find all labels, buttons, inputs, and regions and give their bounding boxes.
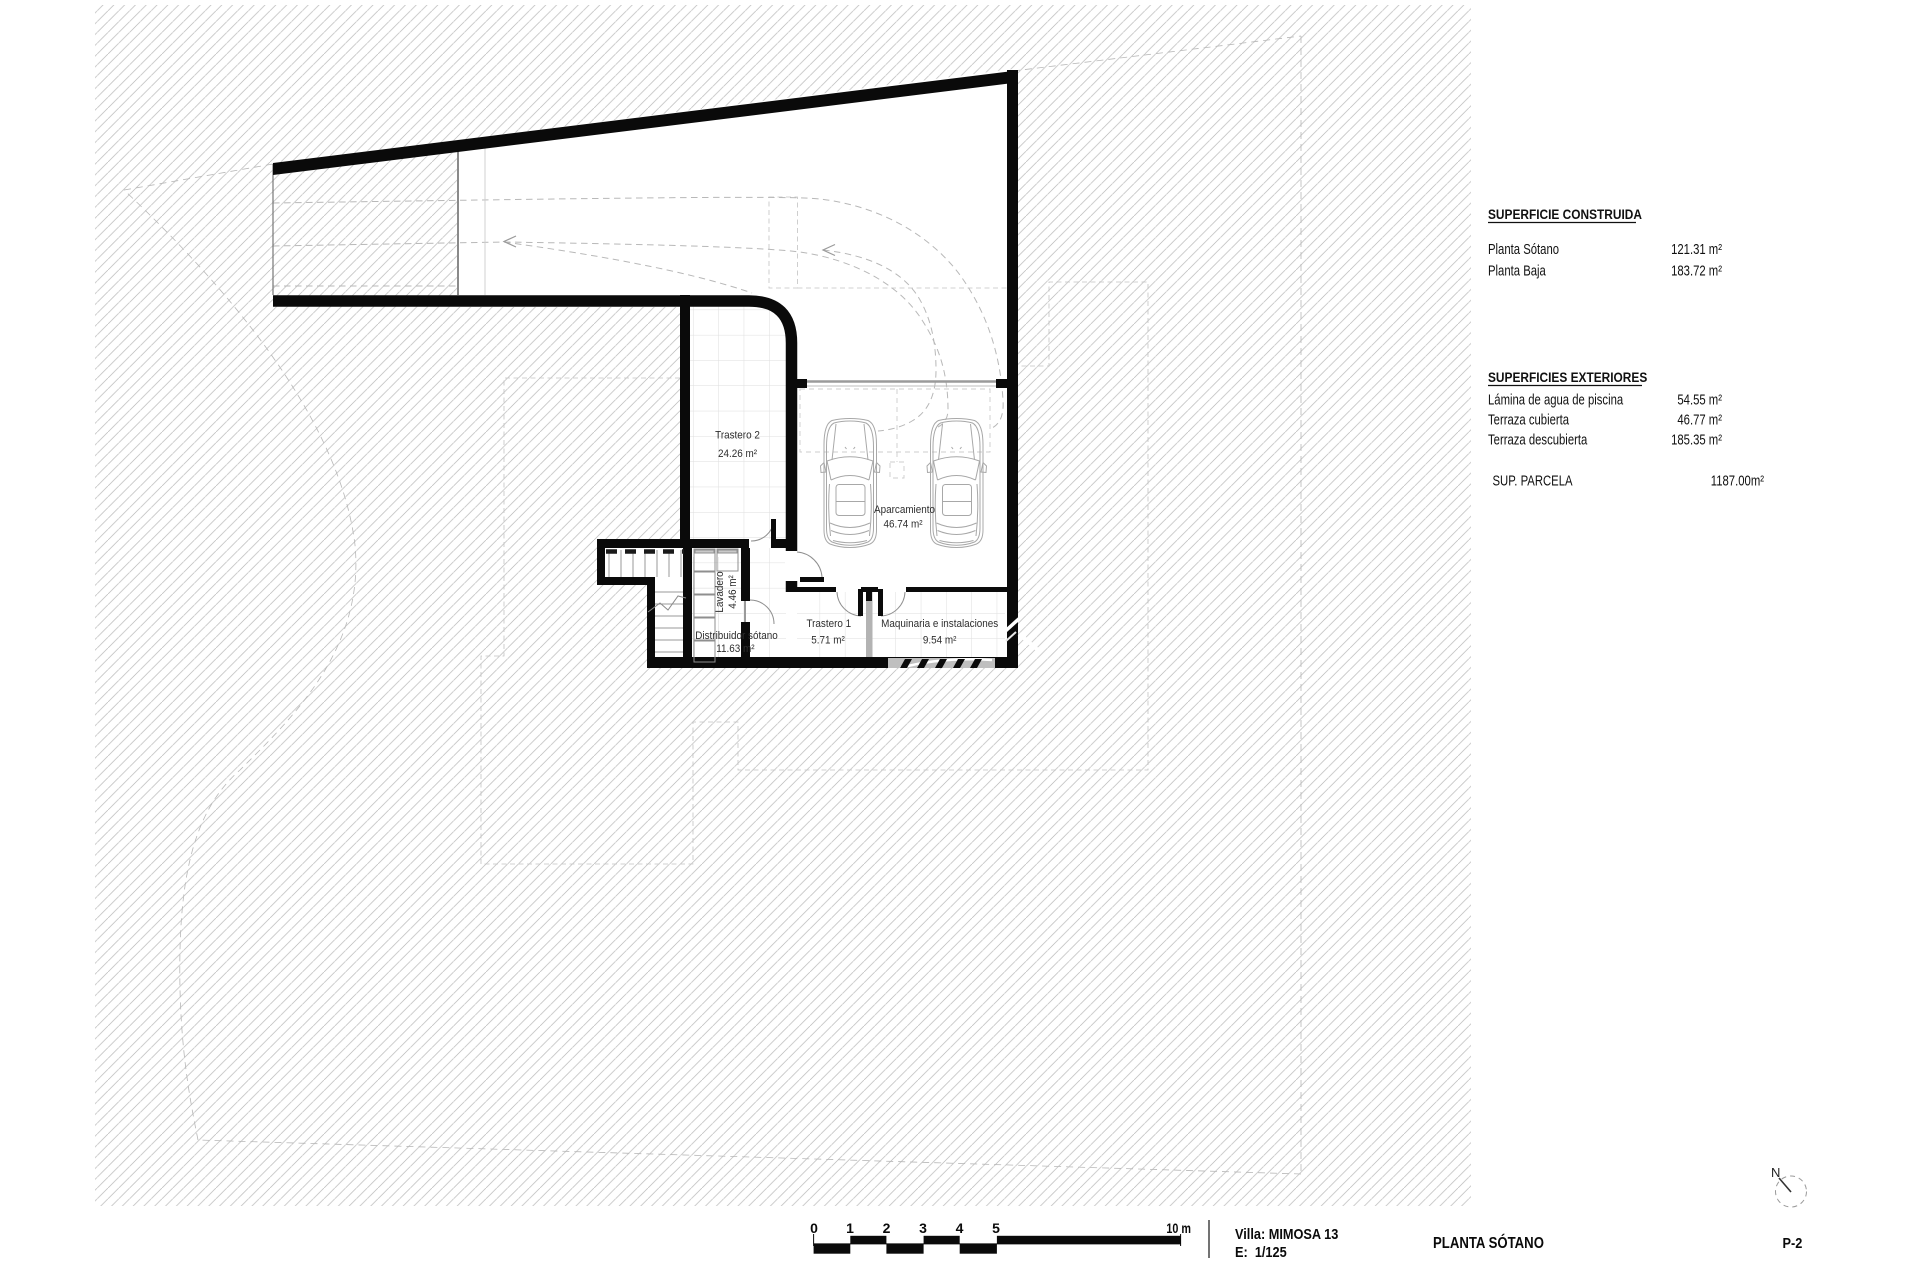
svg-text:SUPERFICIE CONSTRUIDA: SUPERFICIE CONSTRUIDA (1488, 206, 1643, 222)
svg-text:Maquinaria e instalaciones: Maquinaria e instalaciones (881, 619, 998, 631)
svg-text:Terraza cubierta: Terraza cubierta (1488, 411, 1570, 428)
svg-text:Planta Sótano: Planta Sótano (1488, 241, 1559, 258)
svg-text:46.77 m²: 46.77 m² (1677, 411, 1722, 428)
svg-text:5: 5 (992, 1220, 1000, 1236)
svg-text:0: 0 (810, 1220, 818, 1236)
svg-text:2: 2 (883, 1220, 891, 1236)
svg-text:121.31 m²: 121.31 m² (1671, 241, 1722, 258)
svg-text:PLANTA SÓTANO: PLANTA SÓTANO (1433, 1233, 1544, 1252)
svg-text:SUP. PARCELA: SUP. PARCELA (1493, 472, 1573, 489)
svg-text:4: 4 (956, 1220, 964, 1236)
svg-text:24.26 m²: 24.26 m² (718, 449, 758, 461)
svg-text:9.54 m²: 9.54 m² (923, 635, 957, 647)
svg-text:Distribuidor sótano: Distribuidor sótano (695, 631, 778, 643)
svg-text:46.74 m²: 46.74 m² (883, 519, 923, 531)
svg-text:5.71 m²: 5.71 m² (811, 635, 845, 647)
svg-text:3: 3 (919, 1220, 927, 1236)
svg-text:E: 1/125: E: 1/125 (1235, 1243, 1287, 1260)
svg-text:N: N (1771, 1165, 1780, 1180)
svg-text:Villa: MIMOSA 13: Villa: MIMOSA 13 (1235, 1225, 1339, 1242)
svg-text:Lámina de agua de piscina: Lámina de agua de piscina (1488, 391, 1624, 408)
svg-text:10 m: 10 m (1166, 1221, 1191, 1236)
svg-text:Trastero 1: Trastero 1 (806, 619, 851, 631)
svg-text:54.55 m²: 54.55 m² (1677, 391, 1722, 408)
svg-text:Terraza descubierta: Terraza descubierta (1488, 431, 1588, 448)
svg-text:Aparcamiento: Aparcamiento (874, 505, 935, 517)
svg-text:SUPERFICIES EXTERIORES: SUPERFICIES EXTERIORES (1488, 369, 1648, 385)
svg-text:Planta Baja: Planta Baja (1488, 262, 1547, 279)
svg-text:4.46 m²: 4.46 m² (728, 575, 740, 609)
svg-text:1187.00m²: 1187.00m² (1711, 472, 1765, 489)
svg-text:1: 1 (846, 1220, 854, 1236)
svg-text:P-2: P-2 (1783, 1234, 1803, 1251)
svg-text:183.72 m²: 183.72 m² (1671, 262, 1722, 279)
svg-text:185.35 m²: 185.35 m² (1671, 431, 1722, 448)
svg-text:11.63 m²: 11.63 m² (716, 644, 755, 656)
svg-text:Trastero 2: Trastero 2 (715, 430, 760, 442)
svg-text:Lavadero: Lavadero (715, 571, 727, 612)
